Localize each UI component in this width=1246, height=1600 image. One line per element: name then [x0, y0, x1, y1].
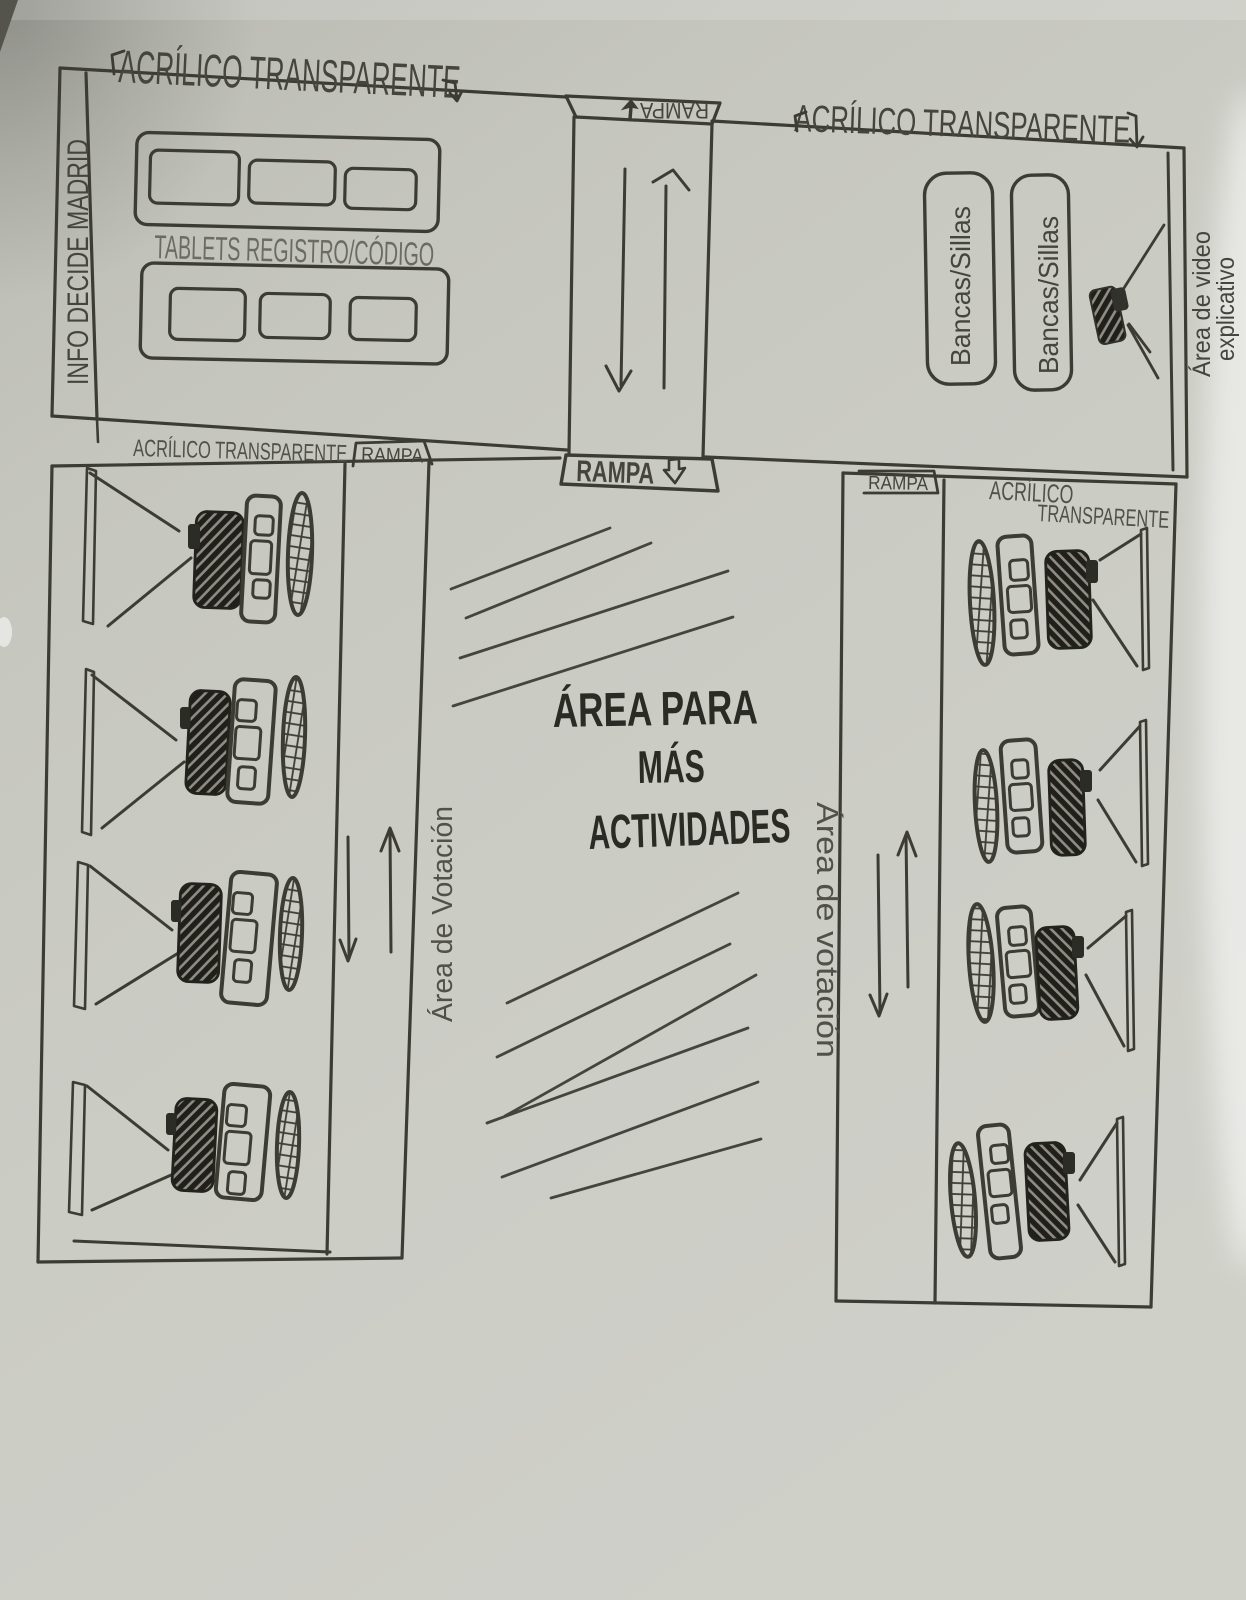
svg-text:Bancas/Sillas: Bancas/Sillas [945, 206, 976, 366]
svg-text:Bancas/Sillas: Bancas/Sillas [1033, 216, 1064, 374]
svg-text:Área de Votación: Área de Votación [426, 806, 459, 1022]
svg-text:RAMPA: RAMPA [868, 473, 929, 495]
svg-text:ACTIVIDADES: ACTIVIDADES [588, 800, 792, 860]
svg-text:RAMPA: RAMPA [576, 455, 655, 491]
svg-text:ÁREA PARA: ÁREA PARA [552, 680, 758, 738]
svg-text:ACRÍLICO TRANSPARENTE: ACRÍLICO TRANSPARENTE [133, 435, 348, 468]
svg-text:explicativo: explicativo [1212, 257, 1240, 361]
svg-text:Área de votación: Área de votación [810, 802, 845, 1058]
svg-text:MÁS: MÁS [637, 740, 705, 793]
svg-text:RAMPA: RAMPA [640, 98, 709, 123]
svg-text:RAMPA: RAMPA [361, 444, 424, 468]
svg-text:INFO DECIDE MADRID: INFO DECIDE MADRID [62, 139, 95, 385]
